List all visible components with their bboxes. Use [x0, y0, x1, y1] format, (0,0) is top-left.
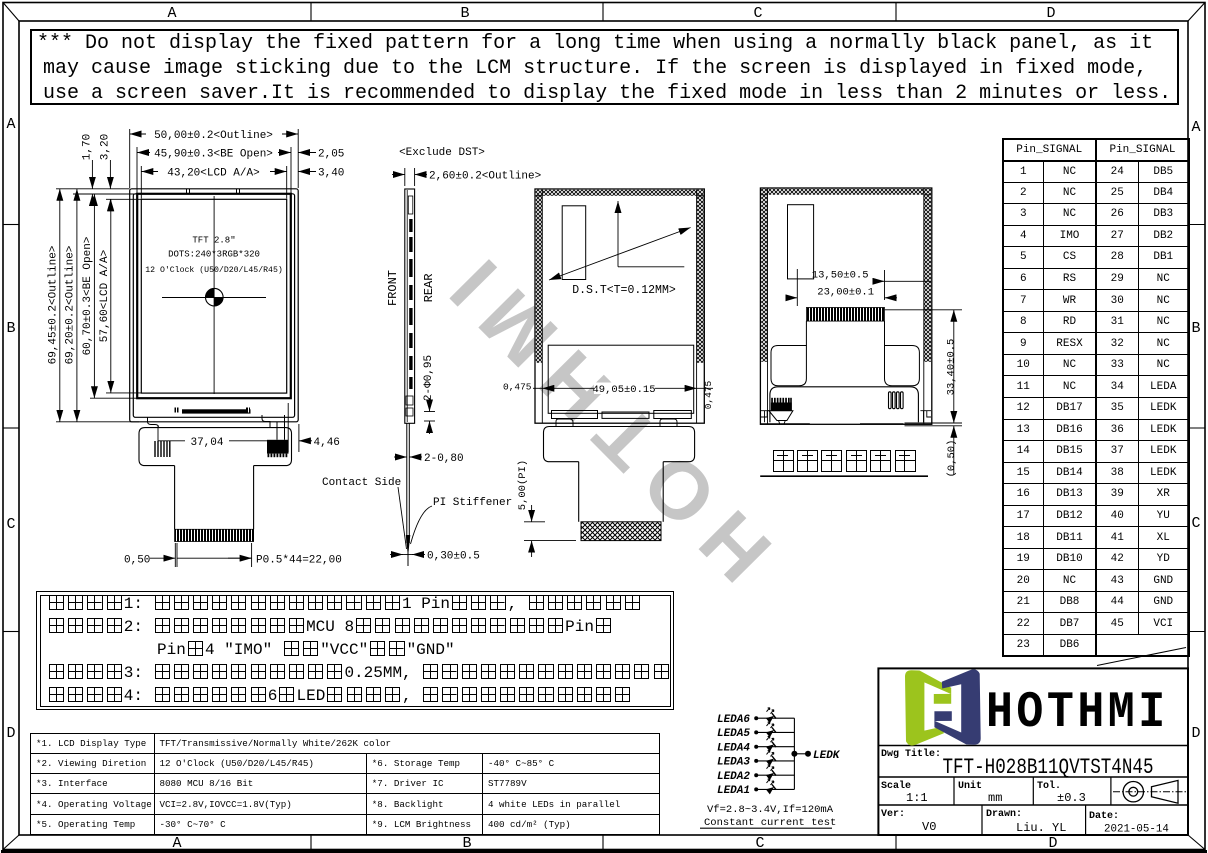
- svg-text:45,90±0.3<BE Open>: 45,90±0.3<BE Open>: [154, 149, 273, 161]
- svg-text:12 O'Clock (U50/D20/L45/R45): 12 O'Clock (U50/D20/L45/R45): [145, 265, 283, 275]
- svg-text:69,20±0.2<Outline>: 69,20±0.2<Outline>: [65, 246, 77, 365]
- svg-text:50,00±0.2<Outline>: 50,00±0.2<Outline>: [154, 130, 273, 142]
- svg-text:13,50±0.5: 13,50±0.5: [812, 270, 869, 282]
- svg-text:LEDK: LEDK: [813, 750, 841, 762]
- svg-text:69,45±0.2<Outline>: 69,45±0.2<Outline>: [48, 246, 60, 365]
- svg-text:<Exclude DST>: <Exclude DST>: [399, 147, 485, 159]
- svg-text:±0.3: ±0.3: [1057, 791, 1086, 805]
- svg-text:1,70: 1,70: [82, 134, 94, 160]
- svg-text:D: D: [1046, 5, 1055, 22]
- svg-text:23,00±0.1: 23,00±0.1: [817, 287, 874, 299]
- svg-text:LEDA2: LEDA2: [717, 771, 750, 783]
- svg-text:LEDA6: LEDA6: [717, 714, 750, 726]
- svg-text:LEDA1: LEDA1: [717, 785, 750, 797]
- svg-text:4,46: 4,46: [314, 437, 340, 449]
- svg-text:Dwg Title:: Dwg Title:: [881, 748, 941, 760]
- svg-text:TFT 2.8": TFT 2.8": [192, 236, 235, 246]
- svg-text:33,40±0.5: 33,40±0.5: [945, 339, 957, 396]
- svg-text:FRONT: FRONT: [386, 270, 400, 306]
- svg-text:0,475: 0,475: [703, 380, 714, 409]
- svg-text:LEDA4: LEDA4: [717, 743, 750, 755]
- svg-text:Constant current test: Constant current test: [704, 817, 836, 829]
- svg-text:1:1: 1:1: [906, 791, 928, 805]
- svg-text:0,30±0.5: 0,30±0.5: [427, 551, 480, 563]
- svg-text:B: B: [462, 835, 471, 852]
- svg-text:49,05±0.15: 49,05±0.15: [592, 384, 655, 396]
- svg-text:0,50: 0,50: [124, 555, 150, 567]
- svg-text:REAR: REAR: [422, 274, 436, 303]
- svg-text:5,00(PI): 5,00(PI): [517, 460, 529, 510]
- svg-text:A: A: [172, 835, 181, 852]
- svg-text:C: C: [1191, 515, 1200, 532]
- svg-text:2-0,80: 2-0,80: [424, 453, 464, 465]
- svg-text:mm: mm: [988, 791, 1002, 805]
- svg-text:PI Stiffener: PI Stiffener: [433, 497, 512, 509]
- svg-text:LEDA3: LEDA3: [717, 757, 750, 769]
- svg-text:TFT-H028B11QVTST4N45: TFT-H028B11QVTST4N45: [942, 754, 1153, 779]
- svg-text:C: C: [753, 5, 762, 22]
- svg-text:B: B: [6, 320, 15, 337]
- svg-text:3,40: 3,40: [318, 168, 344, 180]
- svg-text:2021-05-14: 2021-05-14: [1104, 824, 1169, 836]
- svg-text:3,20: 3,20: [100, 134, 112, 160]
- svg-text:DOTS:240*3RGB*320: DOTS:240*3RGB*320: [168, 250, 260, 260]
- svg-text:C: C: [6, 516, 15, 533]
- svg-text:Unit: Unit: [958, 780, 982, 792]
- svg-text:C: C: [755, 835, 764, 852]
- svg-text:57,60<LCD A/A>: 57,60<LCD A/A>: [99, 250, 111, 342]
- svg-text:LEDA5: LEDA5: [717, 728, 750, 740]
- svg-text:P0.5*44=22,00: P0.5*44=22,00: [256, 555, 342, 567]
- svg-text:HOTHMI: HOTHMI: [986, 685, 1169, 742]
- svg-text:D.S.T<T=0.12MM>: D.S.T<T=0.12MM>: [572, 284, 676, 297]
- svg-text:2,05: 2,05: [318, 149, 344, 161]
- svg-text:2,60±0.2<Outline>: 2,60±0.2<Outline>: [429, 171, 541, 183]
- svg-text:V0: V0: [922, 820, 936, 834]
- svg-text:D: D: [6, 725, 15, 742]
- svg-text:43,20<LCD A/A>: 43,20<LCD A/A>: [167, 168, 259, 180]
- svg-text:Vf=2.8~3.4V,If=120mA: Vf=2.8~3.4V,If=120mA: [707, 804, 834, 816]
- svg-text:60,70±0.3<BE Open>: 60,70±0.3<BE Open>: [82, 237, 94, 356]
- svg-text:Contact Side: Contact Side: [322, 477, 401, 489]
- svg-text:2-Φ0,95: 2-Φ0,95: [423, 355, 435, 401]
- svg-text:0,475: 0,475: [503, 382, 532, 393]
- svg-text:Liu. YL: Liu. YL: [1016, 821, 1066, 835]
- svg-text:Ver:: Ver:: [881, 809, 905, 820]
- svg-text:Drawn:: Drawn:: [986, 809, 1022, 820]
- svg-text:(0,50): (0,50): [946, 440, 958, 478]
- svg-text:D: D: [1048, 835, 1057, 852]
- svg-text:A: A: [1191, 119, 1200, 136]
- svg-text:Date:: Date:: [1089, 811, 1119, 822]
- svg-text:B: B: [460, 5, 469, 22]
- svg-text:A: A: [6, 116, 15, 133]
- svg-text:37,04: 37,04: [190, 437, 223, 449]
- svg-text:D: D: [1191, 725, 1200, 742]
- svg-text:A: A: [167, 5, 176, 22]
- svg-text:B: B: [1191, 320, 1200, 337]
